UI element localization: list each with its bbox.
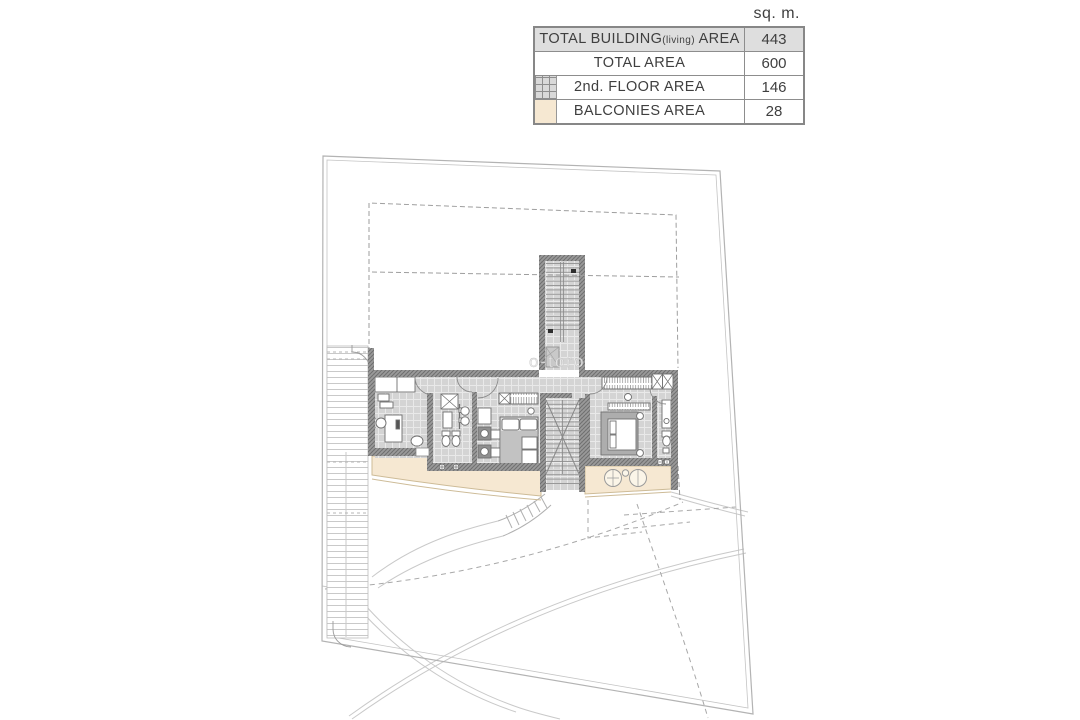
pillow — [610, 435, 616, 448]
row-value: 28 — [744, 100, 803, 123]
row-label-main: BALCONIES AREA — [574, 103, 705, 119]
side-table — [637, 450, 644, 457]
roof-outline-dashed-line — [372, 272, 679, 277]
garden-paths — [322, 492, 748, 719]
row-label-tail: AREA — [695, 31, 740, 47]
vanity-drawers — [491, 448, 500, 457]
stair-marker — [571, 269, 576, 273]
stair-core — [546, 400, 579, 486]
row-label: TOTAL AREA — [535, 52, 744, 75]
lamp — [625, 394, 632, 401]
bidet — [452, 436, 460, 447]
garden-paths-dashed — [325, 500, 736, 718]
row-label: BALCONIES AREA — [535, 100, 744, 123]
exterior-stair — [498, 494, 551, 536]
table-row-2nd-floor-area: 2nd. FLOOR AREA 146 — [535, 75, 803, 99]
pillow — [520, 419, 537, 430]
floor-plan-page: o-toro sq. m. TOTAL BUILDING(living) ARE… — [0, 0, 1080, 720]
daybed — [375, 377, 415, 392]
unit-header: sq. m. — [533, 2, 805, 26]
stair-marker — [548, 329, 553, 333]
table-row-total-building: TOTAL BUILDING(living) AREA 443 — [535, 28, 803, 51]
pillow — [610, 421, 616, 434]
row-label: TOTAL BUILDING(living) AREA — [535, 28, 744, 51]
side-table — [637, 413, 644, 420]
balcony-door — [416, 448, 429, 456]
side-table — [380, 402, 393, 408]
row-label-small: (living) — [662, 35, 695, 46]
row-value: 146 — [744, 76, 803, 99]
floor-hatch-swatch — [535, 76, 557, 99]
row-label-main: TOTAL BUILDING — [539, 31, 662, 47]
right-balcony — [585, 466, 671, 497]
row-value: 443 — [744, 28, 803, 51]
pergola-strip — [327, 345, 370, 647]
side-table — [378, 394, 389, 401]
vanity-drawers — [491, 430, 500, 439]
area-table-body: TOTAL BUILDING(living) AREA 443 TOTAL AR… — [533, 26, 805, 125]
area-table: sq. m. TOTAL BUILDING(living) AREA 443 T… — [533, 2, 805, 125]
toilet — [663, 436, 671, 446]
ottoman — [411, 436, 423, 446]
wash-basin — [461, 417, 469, 425]
balcony-color-swatch — [535, 100, 557, 123]
pillow — [502, 419, 519, 430]
table-row-balconies-area: BALCONIES AREA 28 — [535, 99, 803, 123]
vanity-shelf — [478, 408, 491, 424]
basin — [664, 418, 669, 423]
table-row-total-area: TOTAL AREA 600 — [535, 51, 803, 75]
row-value: 600 — [744, 52, 803, 75]
watermark-text: o-toro — [529, 352, 585, 371]
wash-basin — [461, 407, 469, 415]
bath-cabinet — [443, 412, 452, 428]
row-label-main: 2nd. FLOOR AREA — [574, 79, 705, 95]
monitor — [396, 420, 400, 429]
row-label: 2nd. FLOOR AREA — [535, 76, 744, 99]
desk-chair — [376, 418, 386, 428]
lamp — [528, 408, 534, 414]
toilet — [442, 436, 450, 447]
